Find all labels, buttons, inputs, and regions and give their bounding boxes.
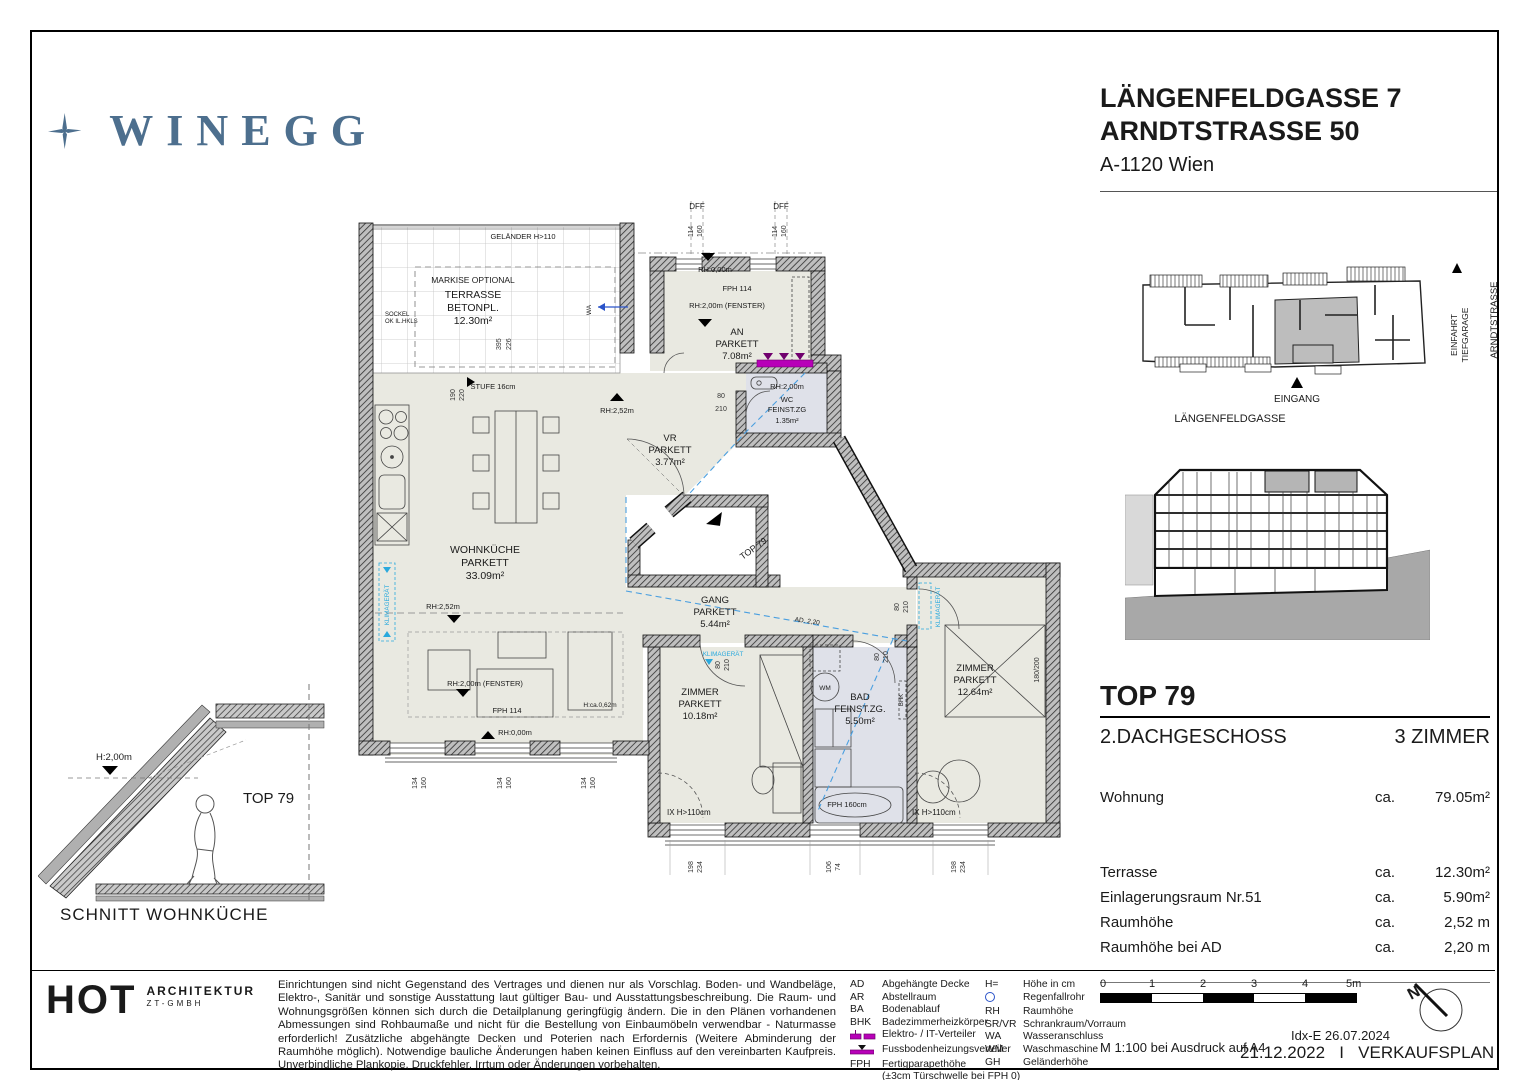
dim-180-200: 180/200: [1034, 657, 1041, 682]
address-block: LÄNGENFELDGASSE 7 ARNDTSTRASSE 50 A-1120…: [1100, 82, 1498, 192]
label-gang: GANG: [701, 595, 729, 606]
plan-title-date: 21.12.2022 I VERKAUFSPLAN: [1240, 1043, 1488, 1063]
plan-type: VERKAUFSPLAN: [1358, 1043, 1494, 1062]
dim-395: 395: [496, 338, 503, 350]
floor-plan: GELÄNDER H>110 MARKISE OPTIONAL TERRASSE…: [355, 195, 1075, 875]
dim-210: 210: [715, 406, 727, 413]
legend-desc: Fertigparapethöhe: [882, 1059, 980, 1072]
winegg-logo: WINEGG: [48, 78, 378, 183]
dim-234: 234: [960, 861, 967, 873]
label-bad-area: 5.50m²: [845, 716, 875, 727]
north-letter: N: [1405, 983, 1423, 1003]
label-wa: WA: [586, 304, 593, 315]
architect-line2: ZT-GMBH: [146, 999, 255, 1008]
site-label-arndtstrasse: ARNDTSTRASSE: [1489, 281, 1500, 358]
label-vr-2: PARKETT: [648, 445, 691, 456]
building-section: [1125, 440, 1430, 640]
row-ca: ca.: [1375, 789, 1415, 806]
legend-abbr: H=: [985, 979, 1023, 992]
legend-desc: Regenfallrohr: [1023, 992, 1100, 1007]
plan-date: 21.12.2022: [1240, 1043, 1325, 1062]
legend-desc: Abgehängte Decke: [882, 979, 980, 992]
dim-134: 134: [412, 777, 419, 789]
legend-fph-note: (±3cm Türschwelle bei FPH 0): [882, 1071, 980, 1080]
scale-tick: 2: [1200, 978, 1206, 990]
legend-desc: Badezimmerheizkörper: [882, 1017, 988, 1030]
address-divider: [1100, 191, 1497, 192]
row-value: 79.05m²: [1415, 789, 1490, 806]
dim-106: 106: [826, 861, 833, 873]
dim-198: 198: [951, 861, 958, 873]
label-zimmer1-area: 10.18m²: [683, 711, 718, 722]
label-window-height-2: IX H>110cm: [912, 808, 956, 817]
label-rh252-vr: RH:2,52m: [600, 406, 634, 415]
label-terrasse-2: BETONPL.: [447, 302, 499, 314]
architect-line1: ARCHITEKTUR: [146, 984, 255, 998]
terrace: GELÄNDER H>110 MARKISE OPTIONAL TERRASSE…: [373, 225, 620, 373]
legend-abbr: WA: [985, 1031, 1023, 1044]
label-wc-2: FEINST.ZG: [768, 405, 807, 414]
scale-tick: 5m: [1346, 978, 1361, 990]
index-revision: Idx-E 26.07.2024: [1240, 1028, 1390, 1043]
row-value: 2,52 m: [1415, 914, 1490, 931]
dim-220: 220: [459, 389, 466, 401]
label-klimageraet-2: KLIMAGERÄT: [703, 650, 744, 658]
dim-114: 114: [688, 226, 695, 237]
label-zimmer1-2: PARKETT: [678, 699, 721, 710]
label-rh252-wk: RH:2,52m: [426, 602, 460, 611]
label-dff-1: DFF: [689, 202, 705, 211]
info-row: Raumhöhe bei AD ca. 2,20 m: [1100, 939, 1490, 956]
site-label-einfahrt2: TIEFGARAGE: [1460, 307, 1470, 362]
row-label: Terrasse: [1100, 864, 1375, 881]
row-value: 5.90m²: [1415, 889, 1490, 906]
row-ca: ca.: [1375, 864, 1415, 881]
dim-134: 134: [581, 777, 588, 789]
regenfallrohr-icon: [985, 992, 995, 1002]
label-klimageraet-3: KLIMAGERÄT: [934, 587, 942, 628]
dim-74: 74: [835, 863, 842, 871]
elektro-it-verteiler-icon: [850, 1030, 876, 1039]
label-wc-area: 1.35m²: [775, 416, 799, 425]
label-zimmer2-area: 12.64m²: [958, 687, 993, 698]
person-figure: [187, 795, 220, 884]
dim-190: 190: [450, 389, 457, 401]
label-hca: H:ca.0,62m: [583, 702, 616, 709]
einfahrt-arrow-icon: [1452, 263, 1462, 273]
dim-210: 210: [883, 651, 890, 663]
legend-desc: Abstellraum: [882, 992, 980, 1005]
row-value: 12.30m²: [1415, 864, 1490, 881]
dim-160: 160: [697, 225, 704, 237]
label-fph114-an: FPH 114: [722, 284, 751, 293]
label-rh200f-wk: RH:2,00m (FENSTER): [447, 679, 523, 688]
label-rh200-wc: RH:2,00m: [770, 382, 804, 391]
site-label-einfahrt1: EINFAHRT: [1449, 314, 1459, 356]
legend-desc: Wasseranschluss: [1023, 1031, 1103, 1044]
label-wohnkueche: WOHNKÜCHE: [450, 544, 520, 556]
dim-80: 80: [717, 393, 725, 400]
label-zimmer1: ZIMMER: [681, 687, 719, 698]
label-an-area: 7.08m²: [722, 351, 752, 362]
dim-210: 210: [724, 659, 731, 671]
unit-info-block: TOP 79 2.DACHGESCHOSS 3 ZIMMER Wohnung c…: [1100, 680, 1490, 983]
label-gelaender: GELÄNDER H>110: [490, 232, 555, 241]
eingang-arrow-icon: [1291, 377, 1303, 388]
legend-column-2: H=Höhe in cm Regenfallrohr RHRaumhöhe SR…: [985, 979, 1100, 1069]
site-plan: EINGANG LÄNGENFELDGASSE EINFAHRT TIEFGAR…: [1125, 245, 1510, 435]
legend-abbr: SR/VR: [985, 1019, 1023, 1032]
winegg-star-icon: [48, 81, 81, 181]
row-value: 2,20 m: [1415, 939, 1490, 956]
disclaimer-text: Einrichtungen sind nicht Gegenstand des …: [278, 979, 836, 1073]
scale-bar: 0 1 2 3 4 5m: [1100, 978, 1370, 1003]
row-label: Wohnung: [1100, 789, 1375, 806]
dim-160: 160: [506, 777, 513, 789]
label-dff-2: DFF: [773, 202, 789, 211]
dim-160: 160: [590, 777, 597, 789]
label-terrasse: TERRASSE: [445, 289, 502, 301]
legend-desc: Waschmaschine: [1023, 1044, 1100, 1057]
info-row: Terrasse ca. 12.30m²: [1100, 864, 1490, 881]
label-markise: MARKISE OPTIONAL: [431, 275, 515, 285]
legend-abbr: GH: [985, 1057, 1023, 1070]
legend-abbr: RH: [985, 1006, 1023, 1019]
legend-abbr: AR: [850, 992, 882, 1005]
dim-160: 160: [781, 225, 788, 237]
legend-desc: Raumhöhe: [1023, 1006, 1100, 1019]
info-row: Einlagerungsraum Nr.51 ca. 5.90m²: [1100, 889, 1490, 906]
label-vr: VR: [663, 433, 676, 444]
dim-114: 114: [772, 226, 779, 237]
label-zimmer2-2: PARKETT: [953, 675, 996, 686]
address-line2: ARNDTSTRASSE 50: [1100, 115, 1498, 148]
legend-desc: Höhe in cm: [1023, 979, 1100, 992]
scale-tick: 1: [1149, 978, 1155, 990]
scale-tick: 3: [1251, 978, 1257, 990]
dim-80: 80: [715, 661, 722, 669]
row-label: Raumhöhe bei AD: [1100, 939, 1375, 956]
label-rh000-an: RH:0,00m: [698, 265, 732, 274]
info-row: Wohnung ca. 79.05m²: [1100, 789, 1490, 806]
dim-80: 80: [894, 603, 901, 611]
label-rh000-wk: RH:0,00m: [498, 728, 532, 737]
schnitt-wohnkueche: H:2,00m TOP 79: [38, 648, 328, 903]
unit-room-count: 3 ZIMMER: [1394, 726, 1490, 749]
row-ca: ca.: [1375, 889, 1415, 906]
label-wohnkueche-2: PARKETT: [461, 557, 509, 569]
scale-tick: 0: [1100, 978, 1106, 990]
row-label: Raumhöhe: [1100, 914, 1375, 931]
legend-abbr: BA: [850, 1004, 882, 1017]
dim-198: 198: [688, 861, 695, 873]
label-sockel-2: OK IL.HKLS: [385, 319, 418, 325]
brand-name: WINEGG: [109, 105, 378, 156]
label-wm: WM: [819, 685, 831, 692]
label-fph160: FPH 160cm: [827, 800, 867, 809]
address-city: A-1120 Wien: [1100, 154, 1498, 177]
legend-desc: Elektro- / IT-Verteiler: [882, 1029, 980, 1044]
unit-number: TOP 79: [1100, 680, 1490, 718]
label-terrasse-area: 12.30m²: [454, 315, 493, 327]
scale-tick: 4: [1302, 978, 1308, 990]
label-an-2: PARKETT: [715, 339, 758, 350]
dim-80: 80: [874, 653, 881, 661]
unit-floor: 2.DACHGESCHOSS: [1100, 726, 1287, 749]
info-row: Raumhöhe ca. 2,52 m: [1100, 914, 1490, 931]
label-stufe: STUFE 16cm: [470, 382, 515, 391]
architect-logo-text: HOT: [46, 982, 136, 1018]
row-ca: ca.: [1375, 914, 1415, 931]
legend-abbr: AD: [850, 979, 882, 992]
label-an: AN: [730, 327, 743, 338]
schnitt-caption: SCHNITT WOHNKÜCHE: [60, 905, 320, 925]
label-wohnkueche-area: 33.09m²: [466, 570, 505, 582]
fussbodenheizungsverteiler-icon: [850, 1045, 874, 1054]
label-zimmer2: ZIMMER: [956, 663, 994, 674]
address-line1: LÄNGENFELDGASSE 7: [1100, 82, 1498, 115]
label-bad-2: FEINST.ZG.: [834, 704, 885, 715]
dim-210: 210: [903, 601, 910, 613]
label-klimageraet-1: KLIMAGERÄT: [383, 585, 391, 626]
label-gang-area: 5.44m²: [700, 619, 730, 630]
legend-column-1: ADAbgehängte Decke ARAbstellraum BABoden…: [850, 979, 980, 1080]
dff-zone: [622, 201, 825, 255]
architect-logo: HOT ARCHITEKTUR ZT-GMBH: [46, 982, 255, 1018]
site-label-eingang: EINGANG: [1274, 394, 1320, 405]
scale-bar-segments: [1100, 993, 1357, 1003]
height-marker-icon: [102, 766, 118, 775]
label-gang-2: PARKETT: [693, 607, 736, 618]
legend-abbr: BHK: [850, 1017, 882, 1030]
label-window-height-1: IX H>110cm: [667, 808, 711, 817]
label-bhk: BHK: [899, 694, 905, 706]
dim-160: 160: [421, 777, 428, 789]
north-arrow: N: [1405, 978, 1469, 1036]
label-rh200f-an: RH:2,00m (FENSTER): [689, 301, 765, 310]
legend-desc: Geländerhöhe: [1023, 1057, 1100, 1070]
legend-desc: Bodenablauf: [882, 1004, 980, 1017]
dim-226: 226: [506, 338, 513, 350]
label-wc: WC: [781, 395, 794, 404]
schnitt-unit-label: TOP 79: [243, 790, 294, 807]
site-label-laengenfeldgasse: LÄNGENFELDGASSE: [1174, 413, 1285, 425]
schnitt-height-label: H:2,00m: [96, 752, 132, 763]
footer-divider: [32, 970, 1495, 971]
label-bad: BAD: [850, 692, 870, 703]
dim-234: 234: [697, 861, 704, 873]
row-ca: ca.: [1375, 939, 1415, 956]
label-vr-area: 3.77m²: [655, 457, 685, 468]
legend-abbr: WM: [985, 1044, 1023, 1057]
dim-134: 134: [497, 777, 504, 789]
label-fph114-wk: FPH 114: [492, 706, 521, 715]
legend-desc: Schrankraum/Vorraum: [1023, 1019, 1126, 1032]
row-label: Einlagerungsraum Nr.51: [1100, 889, 1375, 906]
legend-abbr: FPH: [850, 1059, 882, 1072]
separator: I: [1339, 1043, 1344, 1062]
label-sockel: SOCKEL: [385, 312, 410, 318]
